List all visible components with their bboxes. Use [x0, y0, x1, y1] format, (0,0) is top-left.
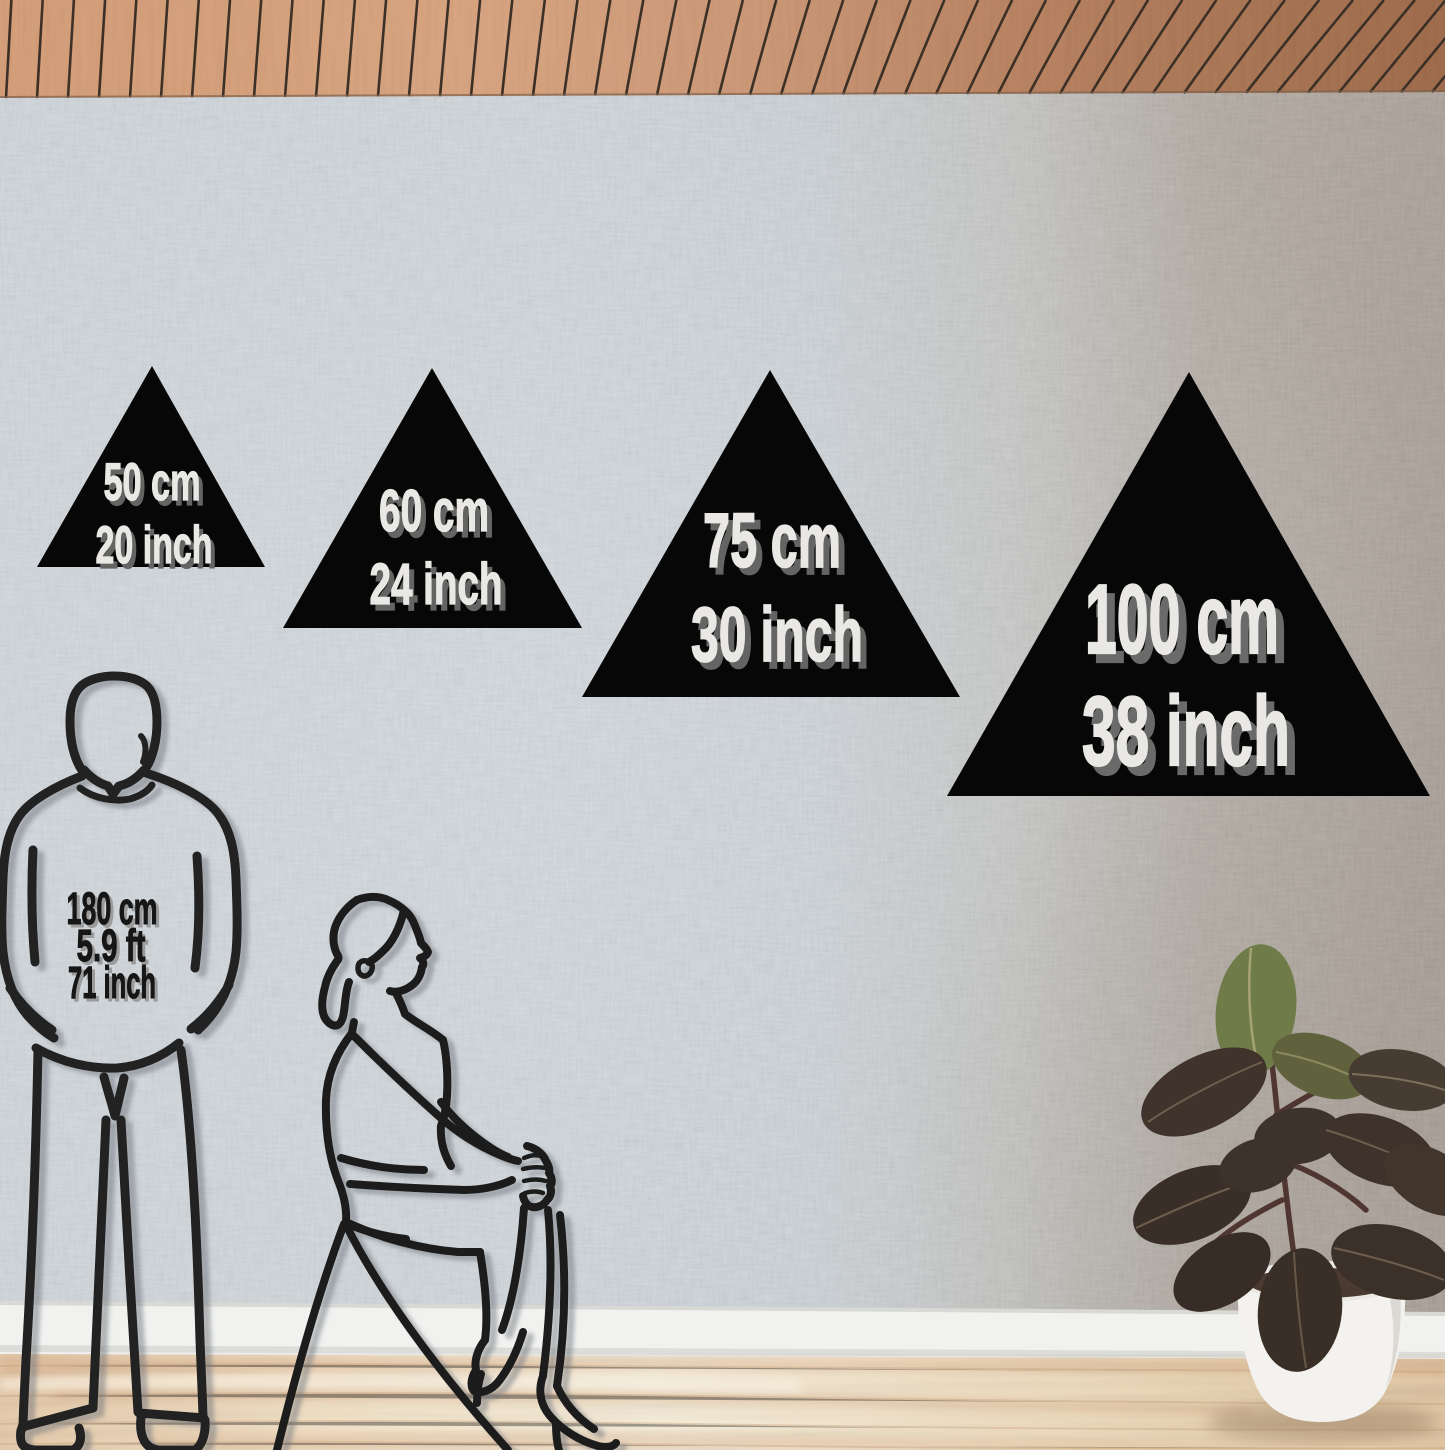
svg-text:24 inch: 24 inch [370, 552, 503, 617]
svg-text:38 inch: 38 inch [1082, 676, 1290, 786]
svg-text:20 inch: 20 inch [96, 516, 213, 575]
svg-text:60 cm: 60 cm [379, 478, 489, 544]
svg-text:71 inch: 71 inch [68, 957, 156, 1008]
svg-text:30 inch: 30 inch [691, 592, 863, 678]
svg-text:100 cm: 100 cm [1085, 564, 1279, 674]
svg-text:50 cm: 50 cm [104, 453, 201, 512]
svg-text:75 cm: 75 cm [703, 498, 841, 584]
